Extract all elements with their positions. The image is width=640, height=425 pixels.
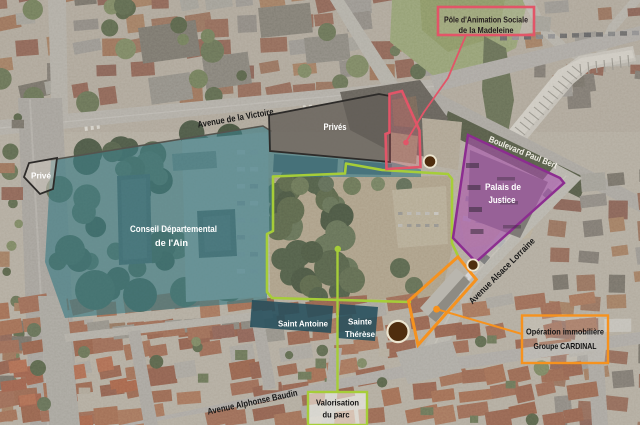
svg-text:Pôle d'Animation Sociale: Pôle d'Animation Sociale xyxy=(444,15,528,25)
svg-text:Palais de: Palais de xyxy=(485,182,521,192)
svg-text:de la Madeleine: de la Madeleine xyxy=(459,25,514,35)
svg-text:Privé: Privé xyxy=(31,171,51,181)
svg-text:Saint Antoine: Saint Antoine xyxy=(278,319,328,329)
svg-text:Justice: Justice xyxy=(489,195,516,205)
svg-text:Sainte: Sainte xyxy=(348,317,372,327)
svg-text:Groupe CARDINAL: Groupe CARDINAL xyxy=(534,341,597,351)
svg-text:Opération immobilière: Opération immobilière xyxy=(526,327,604,337)
svg-text:du parc: du parc xyxy=(323,411,350,420)
svg-text:de l'Ain: de l'Ain xyxy=(155,237,188,248)
svg-text:Thérèse: Thérèse xyxy=(345,329,375,339)
svg-text:Conseil Départemental: Conseil Départemental xyxy=(130,223,217,234)
svg-text:Privés: Privés xyxy=(324,122,347,132)
svg-text:Valorisation: Valorisation xyxy=(316,399,359,408)
